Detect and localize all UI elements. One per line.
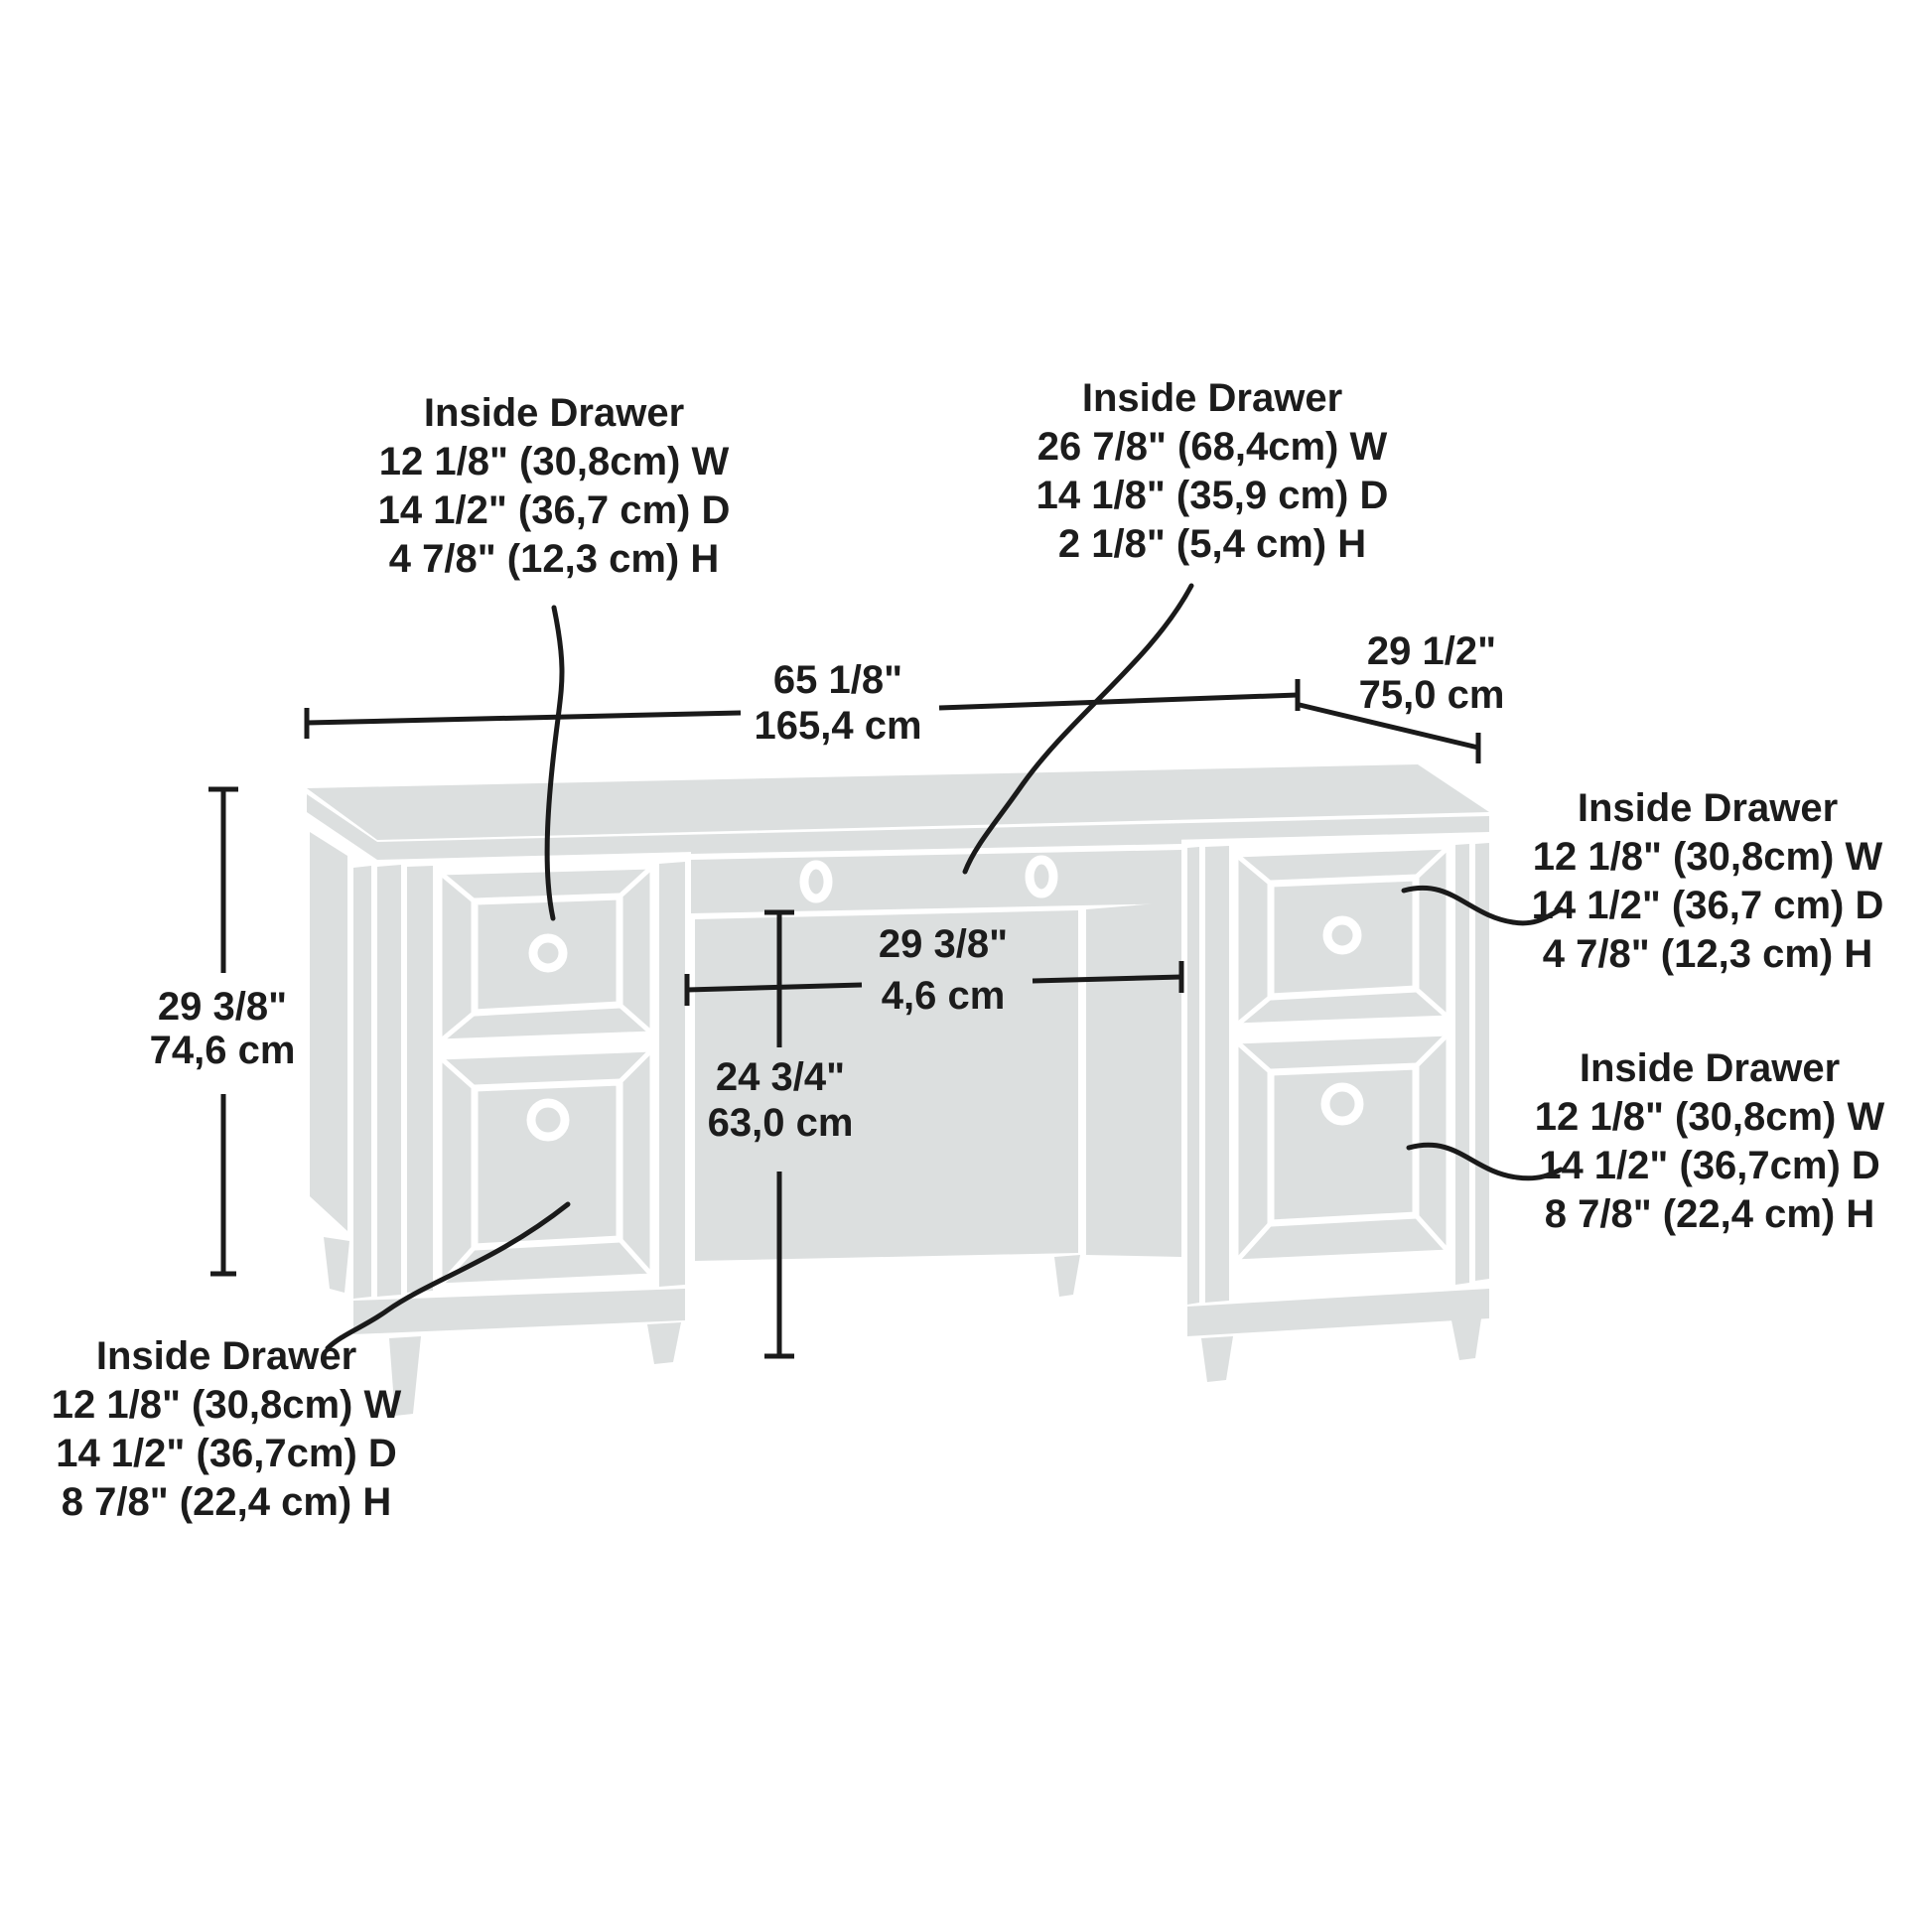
dimension-imperial: 29 3/8" <box>150 985 296 1029</box>
label-kneehole-height: 24 3/4" 63,0 cm <box>708 1054 854 1146</box>
annotation-line: 14 1/2" (36,7 cm) D <box>1532 882 1884 930</box>
annotation-line: 12 1/8" (30,8cm) W <box>1532 833 1884 882</box>
desk-foot-right-left <box>1201 1336 1233 1382</box>
right-pedestal <box>1187 843 1489 1382</box>
left-pedestal-stile <box>353 866 371 1299</box>
annotation-line: 8 7/8" (22,4 cm) H <box>1535 1190 1884 1239</box>
annotation-title: Inside Drawer <box>1532 784 1884 833</box>
annotation-title: Inside Drawer <box>1036 374 1389 423</box>
dimension-imperial: 24 3/4" <box>708 1054 854 1100</box>
label-overall-depth: 29 1/2" 75,0 cm <box>1359 629 1505 717</box>
annotation-line: 12 1/8" (30,8cm) W <box>52 1381 401 1430</box>
dimension-metric: 165,4 cm <box>754 703 921 749</box>
annotation-line: 26 7/8" (68,4cm) W <box>1036 423 1389 472</box>
right-pedestal-stile <box>1187 847 1199 1305</box>
annotation-line: 14 1/8" (35,9 cm) D <box>1036 472 1389 520</box>
diagram-page: Inside Drawer 12 1/8" (30,8cm) W 14 1/2"… <box>0 0 1932 1932</box>
annotation-top-left-drawer: Inside Drawer 12 1/8" (30,8cm) W 14 1/2"… <box>378 389 731 584</box>
annotation-line: 14 1/2" (36,7cm) D <box>1535 1142 1884 1190</box>
right-pedestal-right-stile <box>1455 844 1469 1285</box>
center-drawer-front <box>691 850 1181 913</box>
annotation-line: 4 7/8" (12,3 cm) H <box>378 535 731 584</box>
annotation-line: 14 1/2" (36,7cm) D <box>52 1430 401 1478</box>
annotation-top-center-drawer: Inside Drawer 26 7/8" (68,4cm) W 14 1/8"… <box>1036 374 1389 569</box>
annotation-line: 14 1/2" (36,7 cm) D <box>378 486 731 535</box>
right-top-drawer <box>1235 846 1449 1027</box>
dimension-imperial: 29 1/2" <box>1359 629 1505 673</box>
annotation-line: 2 1/8" (5,4 cm) H <box>1036 520 1389 569</box>
left-pedestal-bottom-rail <box>353 1289 685 1334</box>
dimension-imperial: 29 3/8" <box>879 918 1008 970</box>
dimension-metric: 63,0 cm <box>708 1100 854 1146</box>
drawer-panel <box>1271 878 1416 997</box>
annotation-line: 8 7/8" (22,4 cm) H <box>52 1478 401 1527</box>
left-side-panel <box>310 832 347 1231</box>
right-pedestal-stile <box>1205 846 1229 1303</box>
annotation-right-lower-drawer: Inside Drawer 12 1/8" (30,8cm) W 14 1/2"… <box>1535 1044 1884 1239</box>
drawer-panel <box>475 897 620 1013</box>
annotation-bottom-left-drawer: Inside Drawer 12 1/8" (30,8cm) W 14 1/2"… <box>52 1332 401 1527</box>
desk-foot-kneehole <box>1054 1255 1080 1297</box>
annotation-title: Inside Drawer <box>378 389 731 438</box>
dimension-metric: 74,6 cm <box>150 1029 296 1072</box>
label-overall-height: 29 3/8" 74,6 cm <box>150 985 296 1072</box>
kneehole-inner-side <box>1086 901 1181 1257</box>
desk-foot-right-right <box>1451 1318 1481 1360</box>
desk-left-side <box>310 832 349 1293</box>
desk-foot-front-right <box>647 1322 681 1364</box>
left-pedestal <box>353 862 685 1416</box>
annotation-line: 12 1/8" (30,8cm) W <box>378 438 731 486</box>
desk-foot-back-left <box>324 1237 349 1293</box>
label-kneehole-width: 29 3/8" 4,6 cm <box>879 918 1008 1022</box>
annotation-line: 4 7/8" (12,3 cm) H <box>1532 930 1884 979</box>
annotation-line: 12 1/8" (30,8cm) W <box>1535 1093 1884 1142</box>
dimension-imperial: 65 1/8" <box>754 657 921 703</box>
left-bottom-drawer <box>439 1048 653 1287</box>
dimension-metric: 4,6 cm <box>879 970 1008 1022</box>
label-overall-width: 65 1/8" 165,4 cm <box>754 657 921 749</box>
annotation-right-upper-drawer: Inside Drawer 12 1/8" (30,8cm) W 14 1/2"… <box>1532 784 1884 979</box>
left-pedestal-margin <box>407 866 433 1293</box>
left-pedestal-stile <box>377 865 401 1297</box>
right-pedestal-bottom-rail <box>1187 1289 1489 1336</box>
dimension-metric: 75,0 cm <box>1359 673 1505 717</box>
annotation-title: Inside Drawer <box>52 1332 401 1381</box>
left-pedestal-right-stile <box>659 862 685 1287</box>
annotation-title: Inside Drawer <box>1535 1044 1884 1093</box>
left-top-drawer <box>439 866 653 1042</box>
